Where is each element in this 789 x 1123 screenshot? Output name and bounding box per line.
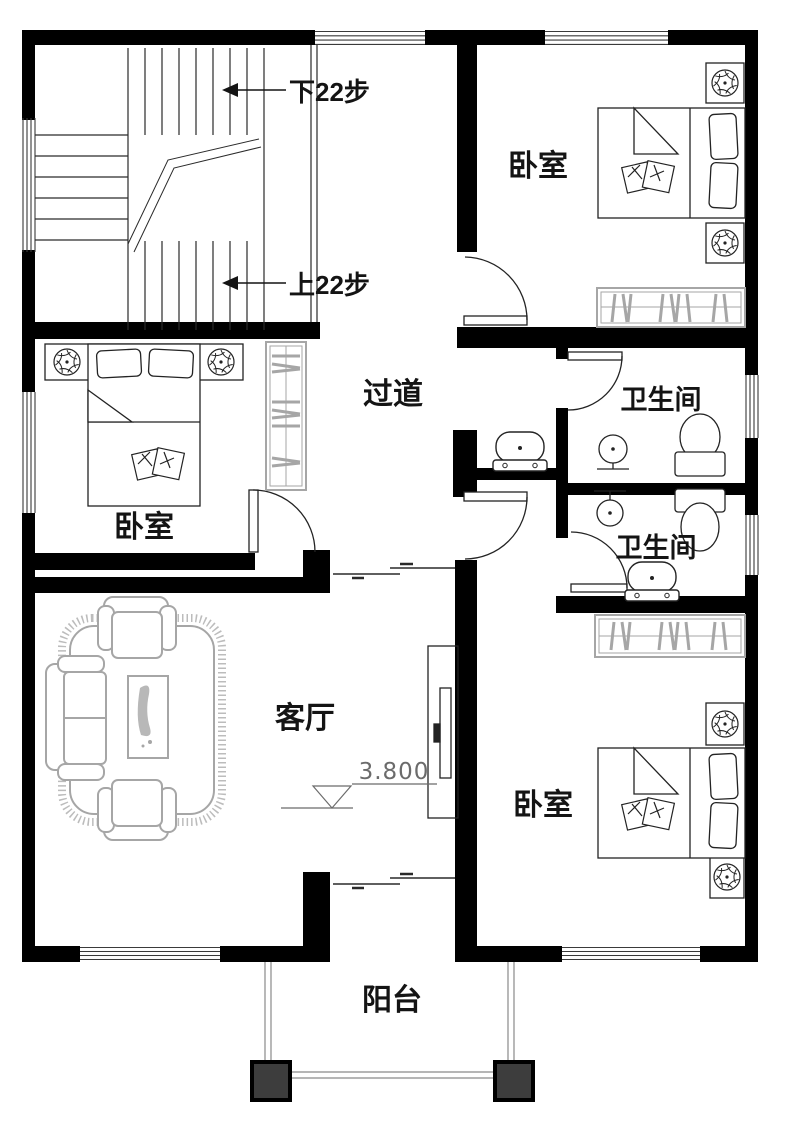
door-bathroom-upper	[568, 352, 622, 410]
throw-pillows	[622, 798, 675, 830]
bedroom-bottom-furniture	[598, 703, 745, 898]
bed	[88, 344, 200, 506]
door-bedroom-top	[464, 257, 527, 325]
stairs-down-label: 下22步	[289, 77, 370, 107]
balcony-column	[252, 1062, 290, 1100]
label-bathroom-lower: 卫生间	[616, 533, 697, 563]
wardrobe-bedroom-left	[266, 342, 306, 490]
bed	[598, 748, 745, 858]
throw-pillows	[622, 161, 675, 193]
staircase: 下22步 上22步	[35, 45, 370, 330]
throw-pillows	[132, 448, 185, 480]
shower-icon	[597, 435, 629, 469]
label-bedroom-bottom: 卧室	[513, 788, 573, 822]
bedroom-top-furniture	[598, 63, 745, 263]
label-living-room: 客厅	[275, 701, 335, 735]
water-heater-icon	[675, 414, 725, 476]
floor-plan: 下22步 上22步	[0, 0, 789, 1123]
wardrobe-bedroom-top	[597, 288, 745, 327]
stairs-down-annotation: 下22步	[222, 77, 370, 107]
door-bedroom-left	[249, 490, 315, 552]
sliding-door-balcony	[333, 874, 455, 888]
lamp-icon	[207, 347, 237, 377]
lamp-icon	[53, 347, 83, 377]
elevation-value: 3.800	[359, 759, 430, 785]
shower-icon	[594, 491, 626, 526]
elevation-marker: 3.800	[281, 759, 437, 808]
sofa	[46, 656, 106, 780]
toilet-icon	[625, 562, 679, 601]
label-bathroom-upper: 卫生间	[621, 385, 702, 415]
label-balcony: 阳台	[362, 983, 422, 1017]
armchair-bottom	[98, 780, 176, 840]
toilet-icon	[493, 432, 547, 471]
label-bedroom-top: 卧室	[508, 149, 568, 183]
bed	[598, 108, 745, 218]
wardrobe-bedroom-bottom	[595, 615, 745, 657]
label-bedroom-left: 卧室	[114, 510, 174, 544]
coffee-table	[128, 676, 168, 758]
stairs-up-label: 上22步	[289, 270, 370, 300]
armchair-top	[98, 597, 176, 658]
tv-unit	[428, 646, 458, 818]
balcony-column	[495, 1062, 533, 1100]
stairs-up-annotation: 上22步	[222, 270, 370, 300]
sliding-door-interior	[333, 564, 455, 578]
balcony	[252, 962, 533, 1100]
bathroom-upper-fixtures	[493, 414, 725, 476]
bedroom-left-furniture	[45, 344, 243, 506]
label-hallway: 过道	[363, 378, 423, 411]
door-hallway	[464, 492, 527, 559]
